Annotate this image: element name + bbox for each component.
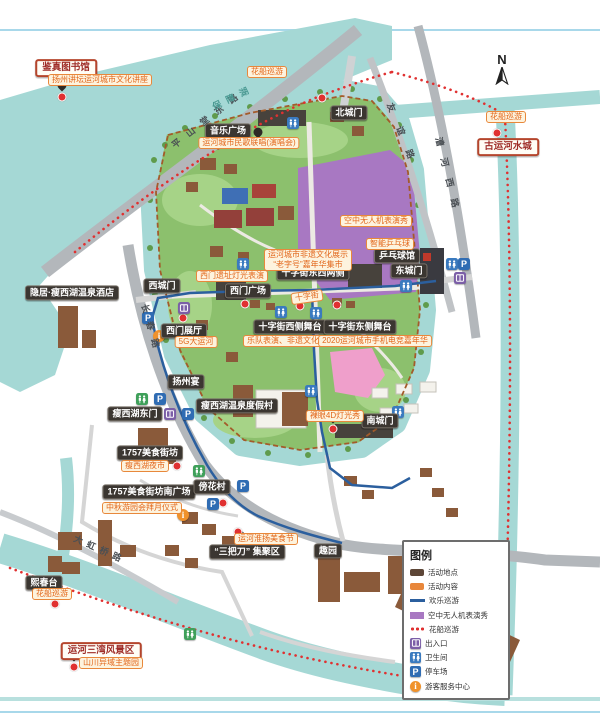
map-canvas [0,0,600,724]
restroom-icon [410,652,421,663]
legend-item-label: 停车场 [425,666,448,677]
activity-map-page: N PPPPPPii 平山堂东路长春路友谊路漕河西路大虹桥路保障湖 北城门音乐广… [0,0,600,724]
legend-item: 花船巡游 [410,624,502,635]
legend-swatch-reddots [410,627,425,631]
legend-rows: 活动地点活动内容欢乐巡游空中无人机表演秀花船巡游出入口卫生间P停车场i游客服务中… [410,567,502,692]
legend-item: 出入口 [410,638,502,649]
legend-item: 空中无人机表演秀 [410,610,502,621]
legend-item: 欢乐巡游 [410,595,502,606]
north-arrow-icon [495,67,509,85]
legend-item-label: 卫生间 [425,652,448,663]
entrance-icon [410,638,421,649]
legend-item: i游客服务中心 [410,681,502,692]
legend-item: 活动内容 [410,581,502,592]
legend-swatch-venue [410,569,424,576]
compass: N [490,52,514,85]
legend-swatch-purple [410,612,424,619]
legend-item-label: 花船巡游 [429,624,459,635]
legend-title: 图例 [410,547,502,563]
legend-item-label: 游客服务中心 [425,681,470,692]
legend-item: P停车场 [410,666,502,677]
legend-panel: 图例 活动地点活动内容欢乐巡游空中无人机表演秀花船巡游出入口卫生间P停车场i游客… [402,540,510,700]
visitor-center-icon: i [410,681,421,692]
legend-item-label: 空中无人机表演秀 [428,610,488,621]
legend-item: 活动地点 [410,567,502,578]
legend-item: 卫生间 [410,652,502,663]
parking-icon: P [410,666,421,677]
legend-item-label: 出入口 [425,638,448,649]
compass-label: N [490,52,514,67]
legend-item-label: 活动内容 [428,581,458,592]
legend-item-label: 活动地点 [428,567,458,578]
legend-item-label: 欢乐巡游 [429,595,459,606]
legend-swatch-blueline [410,599,425,602]
legend-swatch-activity [410,583,424,590]
